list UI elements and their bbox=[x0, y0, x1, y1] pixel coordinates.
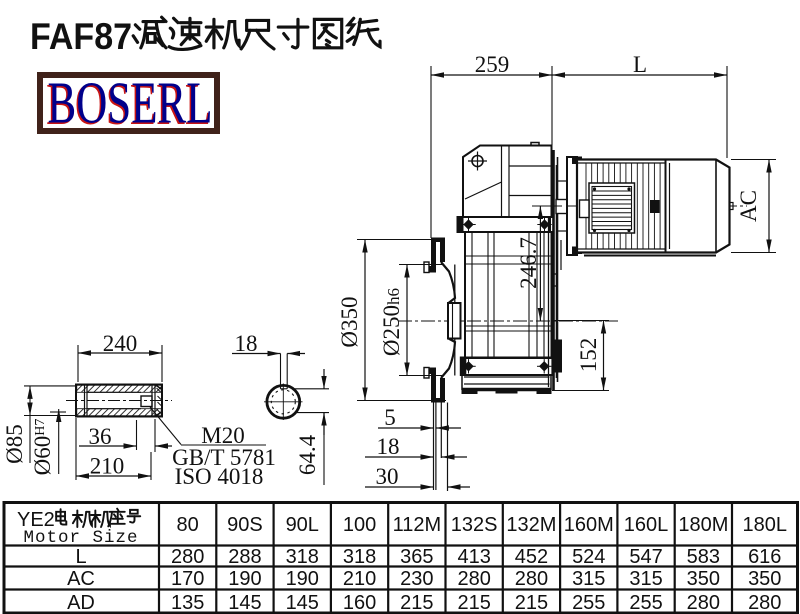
svg-text:365: 365 bbox=[400, 546, 433, 568]
svg-text:90L: 90L bbox=[286, 514, 319, 536]
svg-text:160M: 160M bbox=[564, 514, 614, 536]
svg-text:215: 215 bbox=[515, 592, 548, 614]
svg-text:112M: 112M bbox=[393, 514, 442, 536]
svg-text:ISO 4018: ISO 4018 bbox=[175, 464, 264, 489]
svg-text:5: 5 bbox=[384, 405, 396, 430]
svg-text:318: 318 bbox=[343, 546, 376, 568]
svg-text:160L: 160L bbox=[624, 514, 669, 536]
svg-text:280: 280 bbox=[687, 592, 720, 614]
svg-text:583: 583 bbox=[687, 546, 720, 568]
svg-text:240: 240 bbox=[103, 331, 138, 356]
svg-text:280: 280 bbox=[748, 592, 781, 614]
svg-text:Motor Size: Motor Size bbox=[23, 528, 138, 548]
svg-text:L: L bbox=[75, 546, 86, 568]
svg-text:315: 315 bbox=[629, 568, 662, 590]
svg-text:18: 18 bbox=[235, 331, 258, 356]
svg-text:180M: 180M bbox=[678, 514, 728, 536]
svg-text:350: 350 bbox=[748, 568, 781, 590]
svg-text:135: 135 bbox=[171, 592, 204, 614]
svg-text:255: 255 bbox=[572, 592, 605, 614]
svg-text:100: 100 bbox=[343, 514, 376, 536]
svg-text:452: 452 bbox=[515, 546, 548, 568]
svg-text:132M: 132M bbox=[506, 514, 556, 536]
svg-text:AC: AC bbox=[736, 190, 761, 222]
svg-text:145: 145 bbox=[228, 592, 261, 614]
svg-text:210: 210 bbox=[343, 568, 376, 590]
svg-text:AC: AC bbox=[67, 568, 95, 590]
svg-text:AD: AD bbox=[67, 592, 95, 614]
svg-text:230: 230 bbox=[400, 568, 433, 590]
svg-text:547: 547 bbox=[629, 546, 662, 568]
svg-text:L: L bbox=[633, 52, 647, 77]
svg-text:18: 18 bbox=[377, 434, 400, 459]
svg-text:64.4: 64.4 bbox=[295, 434, 320, 475]
svg-text:280: 280 bbox=[515, 568, 548, 590]
svg-text:215: 215 bbox=[457, 592, 490, 614]
svg-text:80: 80 bbox=[177, 514, 199, 536]
svg-text:BOSERL: BOSERL bbox=[48, 70, 213, 136]
svg-text:288: 288 bbox=[228, 546, 261, 568]
svg-text:413: 413 bbox=[457, 546, 490, 568]
svg-text:524: 524 bbox=[572, 546, 605, 568]
svg-text:145: 145 bbox=[286, 592, 319, 614]
svg-text:616: 616 bbox=[748, 546, 781, 568]
svg-text:315: 315 bbox=[572, 568, 605, 590]
svg-text:190: 190 bbox=[228, 568, 261, 590]
svg-text:318: 318 bbox=[286, 546, 319, 568]
svg-text:170: 170 bbox=[171, 568, 204, 590]
svg-text:180L: 180L bbox=[743, 514, 788, 536]
svg-text:152: 152 bbox=[576, 338, 601, 373]
svg-text:30: 30 bbox=[376, 464, 399, 489]
svg-text:280: 280 bbox=[171, 546, 204, 568]
svg-text:255: 255 bbox=[629, 592, 662, 614]
svg-text:259: 259 bbox=[475, 52, 510, 77]
svg-text:190: 190 bbox=[286, 568, 319, 590]
svg-text:Ø350: Ø350 bbox=[337, 296, 362, 347]
svg-text:36: 36 bbox=[89, 424, 112, 449]
svg-text:90S: 90S bbox=[227, 514, 263, 536]
svg-text:280: 280 bbox=[457, 568, 490, 590]
svg-text:Ø85: Ø85 bbox=[2, 424, 27, 464]
svg-text:FAF87: FAF87 bbox=[30, 16, 132, 57]
svg-text:350: 350 bbox=[687, 568, 720, 590]
svg-text:160: 160 bbox=[343, 592, 376, 614]
svg-text:210: 210 bbox=[90, 454, 125, 479]
svg-text:132S: 132S bbox=[451, 514, 498, 536]
svg-text:246.7: 246.7 bbox=[516, 237, 541, 289]
svg-text:215: 215 bbox=[400, 592, 433, 614]
